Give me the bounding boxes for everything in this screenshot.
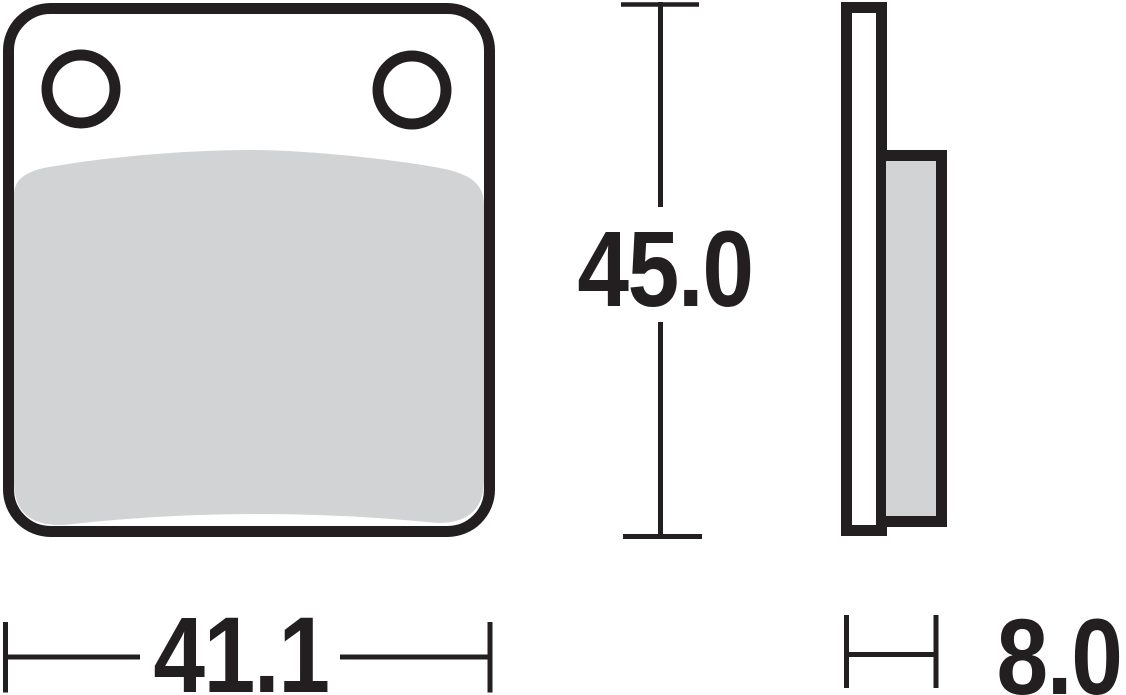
front-view xyxy=(9,9,490,532)
brake-pad-technical-drawing: 45.0 41.1 8.0 xyxy=(0,0,1126,695)
front-friction-pad xyxy=(14,150,484,525)
mounting-hole-right-icon xyxy=(378,56,446,124)
thickness-dimension-label: 8.0 xyxy=(997,603,1122,695)
drawing-area xyxy=(0,0,1126,695)
thickness-dimension-line xyxy=(847,615,937,688)
mounting-hole-left-icon xyxy=(47,55,115,123)
height-dimension-label: 45.0 xyxy=(577,215,752,323)
side-backplate-outline xyxy=(847,8,882,531)
side-view xyxy=(847,8,942,531)
width-dimension-label: 41.1 xyxy=(153,601,328,695)
side-friction-pad xyxy=(886,158,936,518)
